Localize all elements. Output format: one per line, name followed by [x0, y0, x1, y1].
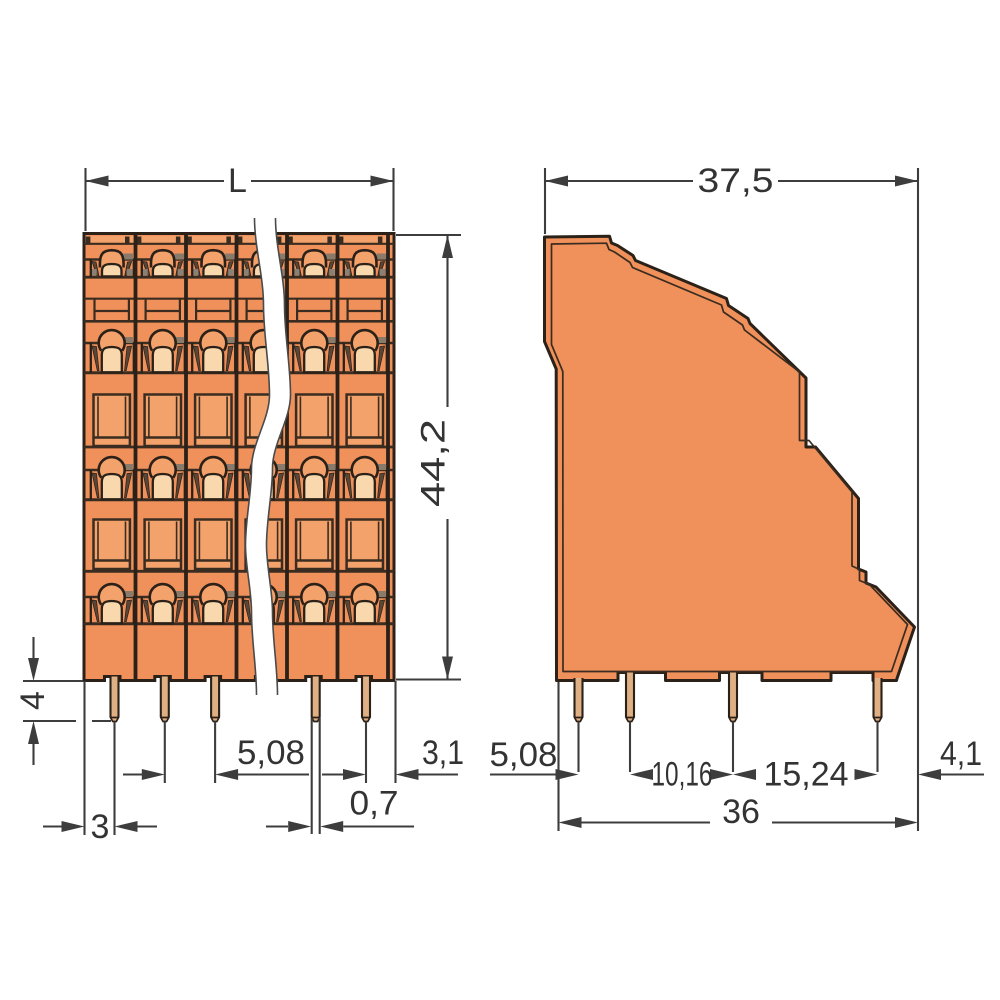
svg-text:0,7: 0,7 [350, 785, 399, 823]
svg-text:36: 36 [722, 793, 760, 831]
svg-text:5,08: 5,08 [490, 736, 558, 774]
svg-text:5,08: 5,08 [237, 734, 305, 772]
svg-text:4,1: 4,1 [940, 735, 982, 773]
svg-text:L: L [228, 162, 247, 200]
svg-text:3: 3 [91, 808, 110, 846]
svg-text:15,24: 15,24 [764, 756, 849, 794]
svg-text:44,2: 44,2 [415, 419, 453, 507]
svg-text:3,1: 3,1 [422, 734, 464, 772]
svg-text:4: 4 [14, 691, 52, 710]
svg-text:10,16: 10,16 [652, 756, 713, 794]
svg-text:37,5: 37,5 [698, 162, 774, 200]
